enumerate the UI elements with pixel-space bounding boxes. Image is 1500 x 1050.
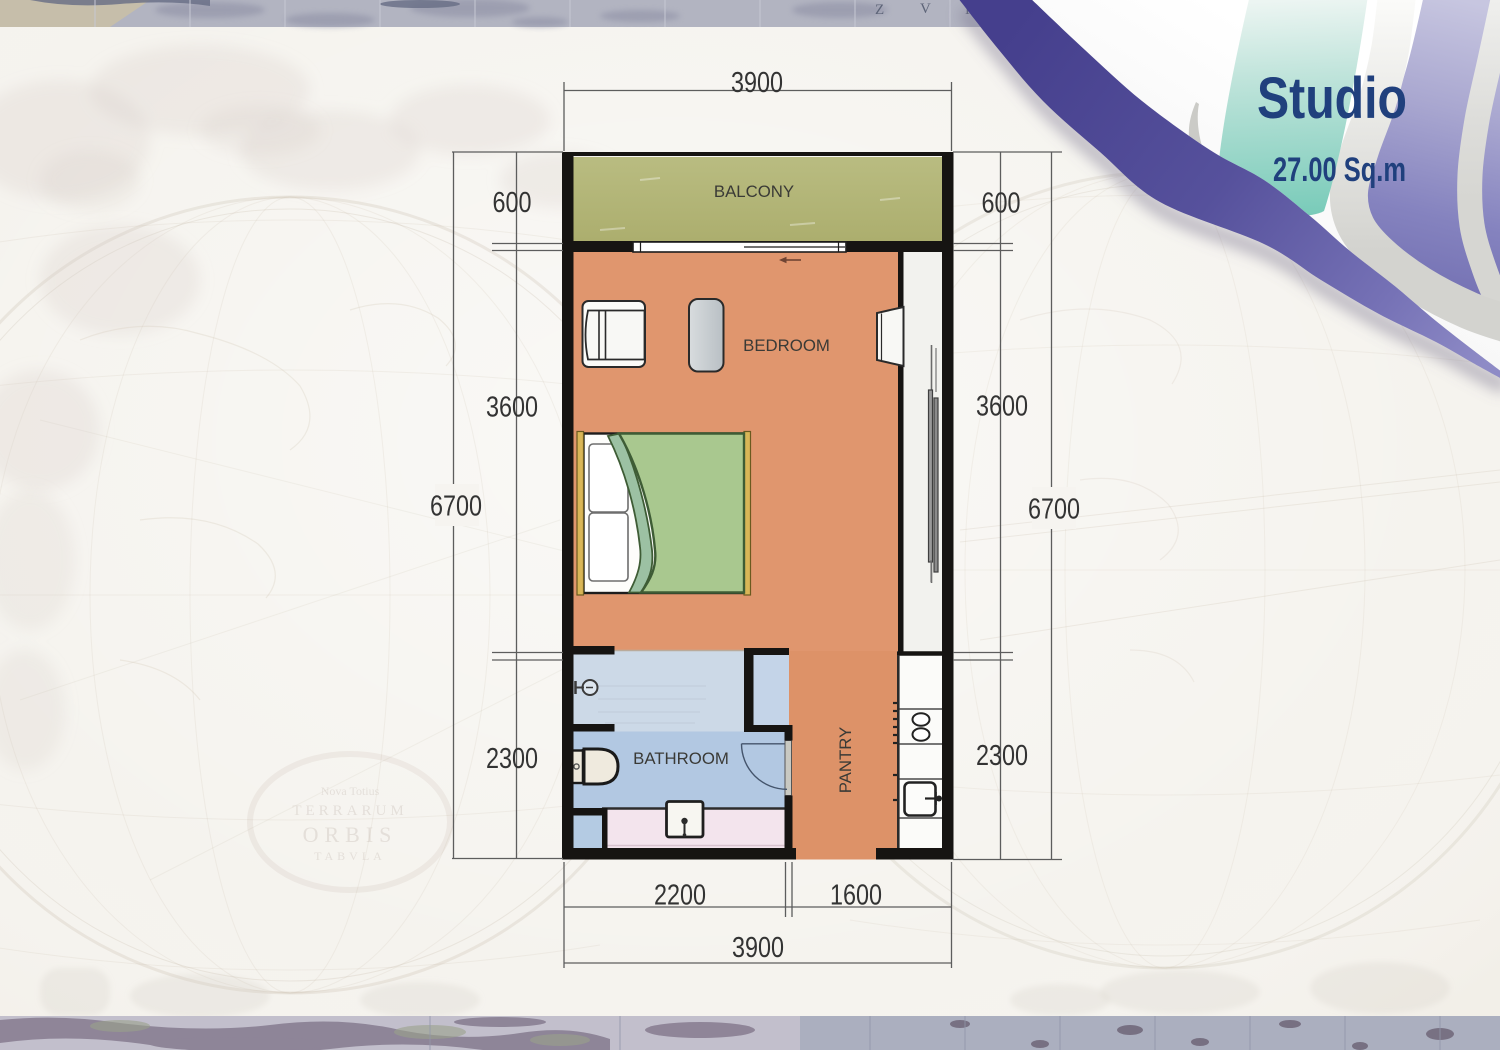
svg-text:3600: 3600 bbox=[486, 392, 538, 424]
svg-text:Studio: Studio bbox=[1257, 66, 1407, 131]
svg-text:2300: 2300 bbox=[976, 740, 1028, 772]
svg-text:TABVLA: TABVLA bbox=[314, 849, 386, 863]
svg-text:BEDROOM: BEDROOM bbox=[743, 336, 830, 355]
svg-text:3900: 3900 bbox=[731, 67, 783, 99]
svg-text:PANTRY: PANTRY bbox=[836, 727, 855, 794]
svg-text:6700: 6700 bbox=[1028, 494, 1080, 526]
svg-text:2200: 2200 bbox=[654, 880, 706, 912]
svg-text:BALCONY: BALCONY bbox=[714, 182, 794, 201]
svg-text:600: 600 bbox=[493, 187, 532, 219]
svg-text:Nova Totius: Nova Totius bbox=[321, 784, 380, 798]
svg-text:3600: 3600 bbox=[976, 391, 1028, 423]
svg-text:V: V bbox=[920, 1, 931, 17]
svg-text:1600: 1600 bbox=[830, 880, 882, 912]
svg-text:600: 600 bbox=[982, 188, 1021, 220]
svg-text:3900: 3900 bbox=[732, 932, 784, 964]
svg-text:ORBIS: ORBIS bbox=[303, 822, 398, 847]
svg-text:Z: Z bbox=[875, 2, 884, 18]
svg-text:2300: 2300 bbox=[486, 743, 538, 775]
svg-text:BATHROOM: BATHROOM bbox=[633, 749, 729, 768]
svg-text:27.00 Sq.m: 27.00 Sq.m bbox=[1273, 151, 1406, 189]
svg-text:TERRARUM: TERRARUM bbox=[292, 803, 407, 819]
svg-text:6700: 6700 bbox=[430, 491, 482, 523]
